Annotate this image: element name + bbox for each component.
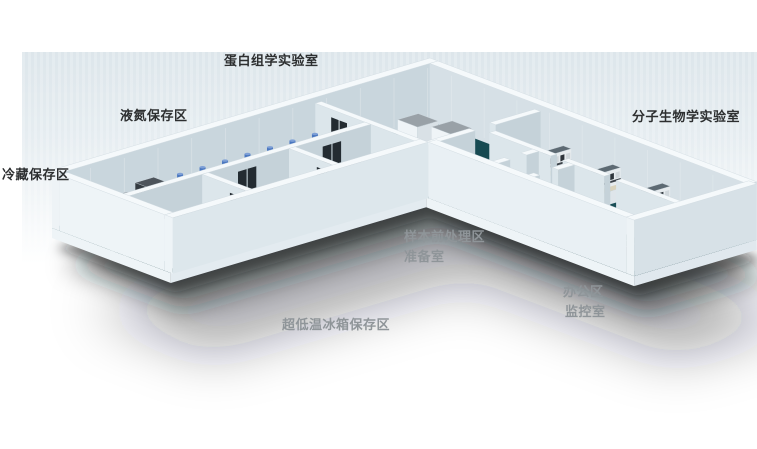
label-preparation-room: 准备室 <box>404 251 445 264</box>
label-office-area: 办公区 <box>563 286 604 299</box>
label-monitoring-room: 监控室 <box>565 306 606 319</box>
label-sample-pretreatment-area: 样本前处理区 <box>404 231 485 244</box>
biobank-floorplan-scene: 蛋白组学实验室 液氮保存区 冷藏保存区 分子生物学实验室 样本前处理区 准备室 … <box>0 0 757 449</box>
label-proteomics-lab: 蛋白组学实验室 <box>224 55 319 68</box>
label-molecular-biology-lab: 分子生物学实验室 <box>632 111 740 124</box>
label-ult-freezer-area: 超低温冰箱保存区 <box>282 319 390 332</box>
label-cold-storage-area: 冷藏保存区 <box>2 169 70 182</box>
lab-3d-floorplan <box>0 0 757 449</box>
label-liquid-nitrogen-area: 液氮保存区 <box>120 110 188 123</box>
